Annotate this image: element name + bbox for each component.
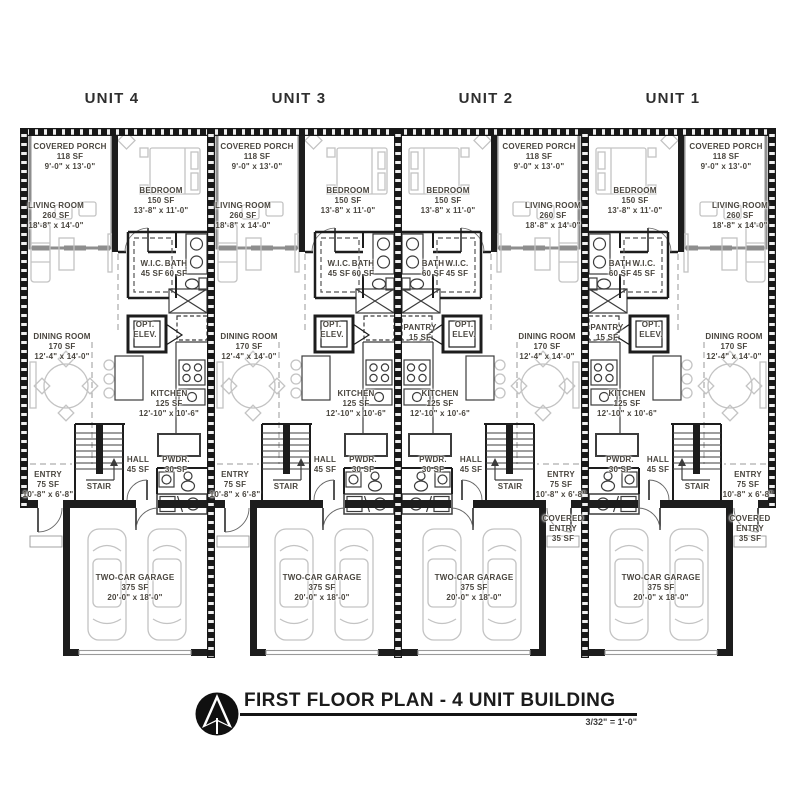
room-label-line: 375 SF	[622, 583, 701, 593]
room-label-line: W.I.C.	[633, 259, 656, 269]
room-label-line: PWDR.	[606, 455, 634, 465]
room-label-line: 30 SF	[606, 465, 634, 475]
room-label-line: DINING ROOM	[705, 332, 762, 342]
room-label-garage: TWO-CAR GARAGE375 SF20'-0" x 18'-0"	[283, 573, 362, 602]
room-label-line: BATH	[352, 259, 374, 269]
room-label-line: COVERED PORCH	[502, 142, 575, 152]
room-label-bath: BATH60 SF	[352, 259, 374, 279]
room-label-kitchen: KITCHEN125 SF12'-10" x 10'-6"	[410, 389, 470, 418]
room-label-kitchen: KITCHEN125 SF12'-10" x 10'-6"	[326, 389, 386, 418]
room-label-line: 45 SF	[127, 465, 149, 475]
unit-1: COVERED PORCH118 SF9'-0" x 13'-0"BEDROOM…	[589, 128, 768, 663]
room-label-covered-porch: COVERED PORCH118 SF9'-0" x 13'-0"	[689, 142, 762, 171]
room-label-line: BEDROOM	[608, 186, 663, 196]
room-label-line: 13'-8" x 11'-0"	[421, 206, 476, 216]
room-label-line: 75 SF	[723, 480, 774, 490]
room-label-line: 20'-0" x 18'-0"	[622, 593, 701, 603]
room-label-line: DINING ROOM	[33, 332, 90, 342]
room-label-line: 15 SF	[590, 333, 623, 343]
room-label-line: 12'-10" x 10'-6"	[597, 409, 657, 419]
room-label-line: BEDROOM	[421, 186, 476, 196]
room-label-hall: HALL45 SF	[127, 455, 149, 475]
room-label-line: KITCHEN	[410, 389, 470, 399]
room-label-stair: STAIR	[498, 482, 522, 492]
room-label-line: 12'-10" x 10'-6"	[139, 409, 199, 419]
room-label-line: 125 SF	[326, 399, 386, 409]
room-label-pwdr: PWDR.30 SF	[419, 455, 447, 475]
room-label-line: DINING ROOM	[518, 332, 575, 342]
room-label-line: BATH	[422, 259, 444, 269]
room-label-bedroom: BEDROOM150 SF13'-8" x 11'-0"	[421, 186, 476, 215]
room-label-line: ENTRY	[543, 524, 584, 534]
room-label-line: 60 SF	[352, 269, 374, 279]
room-label-line: 12'-4" x 14'-0"	[705, 352, 762, 362]
room-label-hall: HALL45 SF	[647, 455, 669, 475]
room-label-line: 9'-0" x 13'-0"	[689, 162, 762, 172]
room-label-line: 20'-0" x 18'-0"	[435, 593, 514, 603]
room-label-covered-entry: COVEREDENTRY35 SF	[730, 514, 771, 543]
room-label-line: 10'-8" x 6'-8"	[723, 490, 774, 500]
room-label-pwdr: PWDR.30 SF	[162, 455, 190, 475]
wall-right	[768, 128, 776, 508]
room-label-living-room: LIVING ROOM260 SF18'-8" x 14'-0"	[712, 201, 768, 230]
room-label-line: 30 SF	[162, 465, 190, 475]
room-label-line: W.I.C.	[328, 259, 351, 269]
room-label-line: 20'-0" x 18'-0"	[283, 593, 362, 603]
room-label-line: 118 SF	[33, 152, 106, 162]
room-label-line: STAIR	[87, 482, 111, 492]
room-label-line: 45 SF	[314, 465, 336, 475]
room-label-line: 260 SF	[28, 211, 84, 221]
room-label-line: ELEV.	[133, 330, 156, 340]
room-label-line: 13'-8" x 11'-0"	[134, 206, 189, 216]
room-label-line: PWDR.	[162, 455, 190, 465]
room-label-line: 9'-0" x 13'-0"	[33, 162, 106, 172]
room-label-line: 260 SF	[712, 211, 768, 221]
room-label-line: 170 SF	[33, 342, 90, 352]
room-label-hall: HALL45 SF	[314, 455, 336, 475]
room-label-line: 12'-4" x 14'-0"	[518, 352, 575, 362]
room-label-line: 45 SF	[141, 269, 164, 279]
room-label-line: TWO-CAR GARAGE	[622, 573, 701, 583]
room-label-line: 375 SF	[283, 583, 362, 593]
room-label-line: HALL	[647, 455, 669, 465]
room-label-opt-elev: OPT.ELEV.	[639, 320, 662, 340]
room-label-line: 18'-8" x 14'-0"	[712, 221, 768, 231]
room-label-dining-room: DINING ROOM170 SF12'-4" x 14'-0"	[518, 332, 575, 361]
room-label-garage: TWO-CAR GARAGE375 SF20'-0" x 18'-0"	[96, 573, 175, 602]
room-label-line: KITCHEN	[326, 389, 386, 399]
room-label-stair: STAIR	[87, 482, 111, 492]
room-label-line: 260 SF	[525, 211, 581, 221]
room-label-line: 30 SF	[419, 465, 447, 475]
room-label-opt-elev: OPT.ELEV.	[133, 320, 156, 340]
room-label-line: 12'-10" x 10'-6"	[410, 409, 470, 419]
room-label-line: OPT.	[133, 320, 156, 330]
room-label-line: 45 SF	[647, 465, 669, 475]
room-label-line: 60 SF	[165, 269, 187, 279]
room-label-line: 15 SF	[403, 333, 436, 343]
room-label-line: ELEV.	[320, 330, 343, 340]
room-label-line: HALL	[460, 455, 482, 465]
room-label-line: 60 SF	[609, 269, 631, 279]
room-label-line: TWO-CAR GARAGE	[435, 573, 514, 583]
room-label-line: COVERED PORCH	[220, 142, 293, 152]
room-label-entry: ENTRY75 SF10'-8" x 6'-8"	[210, 470, 261, 499]
room-label-pantry: PANTRY15 SF	[590, 323, 623, 343]
room-label-line: KITCHEN	[597, 389, 657, 399]
room-label-covered-porch: COVERED PORCH118 SF9'-0" x 13'-0"	[220, 142, 293, 171]
unit-label-unit-2: UNIT 2	[459, 90, 514, 107]
plan-scale: 3/32" = 1'-0"	[500, 717, 637, 727]
room-label-bedroom: BEDROOM150 SF13'-8" x 11'-0"	[134, 186, 189, 215]
room-label-bath: BATH60 SF	[609, 259, 631, 279]
room-label-line: OPT.	[320, 320, 343, 330]
room-label-line: 150 SF	[321, 196, 376, 206]
room-label-line: 13'-8" x 11'-0"	[321, 206, 376, 216]
room-label-line: 18'-8" x 14'-0"	[525, 221, 581, 231]
room-label-kitchen: KITCHEN125 SF12'-10" x 10'-6"	[139, 389, 199, 418]
unit-4: COVERED PORCH118 SF9'-0" x 13'-0"BEDROOM…	[28, 128, 207, 663]
room-label-line: 125 SF	[410, 399, 470, 409]
room-label-line: COVERED	[543, 514, 584, 524]
room-label-line: COVERED	[730, 514, 771, 524]
room-label-line: PANTRY	[403, 323, 436, 333]
room-label-line: 118 SF	[502, 152, 575, 162]
unit-label-unit-1: UNIT 1	[646, 90, 701, 107]
room-label-line: ENTRY	[23, 470, 74, 480]
room-label-line: DINING ROOM	[220, 332, 277, 342]
party-wall-3	[581, 128, 589, 658]
room-label-garage: TWO-CAR GARAGE375 SF20'-0" x 18'-0"	[622, 573, 701, 602]
room-label-line: 18'-8" x 14'-0"	[28, 221, 84, 231]
room-label-line: OPT.	[639, 320, 662, 330]
room-label-line: 18'-8" x 14'-0"	[215, 221, 271, 231]
unit-2: COVERED PORCH118 SF9'-0" x 13'-0"BEDROOM…	[402, 128, 581, 663]
room-label-wic: W.I.C.45 SF	[141, 259, 164, 279]
room-label-line: 10'-8" x 6'-8"	[536, 490, 587, 500]
room-label-opt-elev: OPT.ELEV.	[320, 320, 343, 340]
room-label-line: 45 SF	[446, 269, 469, 279]
room-label-line: HALL	[127, 455, 149, 465]
room-label-line: 75 SF	[210, 480, 261, 490]
room-label-bath: BATH60 SF	[422, 259, 444, 279]
room-label-hall: HALL45 SF	[460, 455, 482, 475]
room-label-wic: W.I.C.45 SF	[328, 259, 351, 279]
room-label-line: 20'-0" x 18'-0"	[96, 593, 175, 603]
room-label-line: 45 SF	[633, 269, 656, 279]
title-underline	[240, 713, 637, 716]
room-label-line: 35 SF	[543, 534, 584, 544]
room-label-line: 375 SF	[96, 583, 175, 593]
room-label-pwdr: PWDR.30 SF	[606, 455, 634, 475]
room-label-line: ENTRY	[210, 470, 261, 480]
room-label-entry: ENTRY75 SF10'-8" x 6'-8"	[723, 470, 774, 499]
room-label-line: 375 SF	[435, 583, 514, 593]
room-label-line: OPT.	[452, 320, 475, 330]
room-label-line: ENTRY	[536, 470, 587, 480]
room-label-line: PWDR.	[349, 455, 377, 465]
room-label-line: STAIR	[685, 482, 709, 492]
room-label-line: PWDR.	[419, 455, 447, 465]
room-label-line: ENTRY	[730, 524, 771, 534]
room-label-line: STAIR	[498, 482, 522, 492]
north-arrow-icon	[194, 691, 240, 737]
room-label-line: 12'-10" x 10'-6"	[326, 409, 386, 419]
room-label-line: BATH	[165, 259, 187, 269]
room-label-line: ELEV.	[452, 330, 475, 340]
room-label-living-room: LIVING ROOM260 SF18'-8" x 14'-0"	[215, 201, 271, 230]
room-label-line: 170 SF	[518, 342, 575, 352]
room-label-line: TWO-CAR GARAGE	[283, 573, 362, 583]
room-label-line: 13'-8" x 11'-0"	[608, 206, 663, 216]
floor-plan-sheet: UNIT 4UNIT 3UNIT 2UNIT 1	[0, 0, 800, 800]
room-label-pantry: PANTRY15 SF	[403, 323, 436, 343]
room-label-line: STAIR	[274, 482, 298, 492]
room-label-line: COVERED PORCH	[689, 142, 762, 152]
room-label-line: 150 SF	[421, 196, 476, 206]
room-label-line: BEDROOM	[134, 186, 189, 196]
room-label-opt-elev: OPT.ELEV.	[452, 320, 475, 340]
room-label-line: 12'-4" x 14'-0"	[33, 352, 90, 362]
room-label-line: HALL	[314, 455, 336, 465]
room-label-living-room: LIVING ROOM260 SF18'-8" x 14'-0"	[28, 201, 84, 230]
room-label-wic: W.I.C.45 SF	[446, 259, 469, 279]
room-label-line: BATH	[609, 259, 631, 269]
room-label-garage: TWO-CAR GARAGE375 SF20'-0" x 18'-0"	[435, 573, 514, 602]
room-label-line: LIVING ROOM	[28, 201, 84, 211]
room-label-pwdr: PWDR.30 SF	[349, 455, 377, 475]
room-label-wic: W.I.C.45 SF	[633, 259, 656, 279]
room-label-line: 60 SF	[422, 269, 444, 279]
room-label-line: 35 SF	[730, 534, 771, 544]
room-label-bedroom: BEDROOM150 SF13'-8" x 11'-0"	[608, 186, 663, 215]
room-label-line: 45 SF	[328, 269, 351, 279]
room-label-kitchen: KITCHEN125 SF12'-10" x 10'-6"	[597, 389, 657, 418]
room-label-dining-room: DINING ROOM170 SF12'-4" x 14'-0"	[220, 332, 277, 361]
room-label-line: 10'-8" x 6'-8"	[23, 490, 74, 500]
room-label-line: 10'-8" x 6'-8"	[210, 490, 261, 500]
room-label-line: BEDROOM	[321, 186, 376, 196]
room-label-line: 150 SF	[134, 196, 189, 206]
room-label-line: LIVING ROOM	[215, 201, 271, 211]
room-label-living-room: LIVING ROOM260 SF18'-8" x 14'-0"	[525, 201, 581, 230]
room-label-line: 75 SF	[23, 480, 74, 490]
room-label-line: 45 SF	[460, 465, 482, 475]
room-label-line: ELEV.	[639, 330, 662, 340]
room-label-line: COVERED PORCH	[33, 142, 106, 152]
party-wall-2	[394, 128, 402, 658]
room-label-dining-room: DINING ROOM170 SF12'-4" x 14'-0"	[705, 332, 762, 361]
room-label-line: 150 SF	[608, 196, 663, 206]
plan-title: FIRST FLOOR PLAN - 4 UNIT BUILDING	[244, 690, 615, 712]
room-label-line: TWO-CAR GARAGE	[96, 573, 175, 583]
building-plan: COVERED PORCH118 SF9'-0" x 13'-0"BEDROOM…	[20, 128, 776, 663]
room-label-stair: STAIR	[274, 482, 298, 492]
room-label-entry: ENTRY75 SF10'-8" x 6'-8"	[23, 470, 74, 499]
room-label-line: KITCHEN	[139, 389, 199, 399]
wall-left	[20, 128, 28, 508]
room-label-line: 118 SF	[689, 152, 762, 162]
room-label-covered-porch: COVERED PORCH118 SF9'-0" x 13'-0"	[33, 142, 106, 171]
room-label-bath: BATH60 SF	[165, 259, 187, 279]
unit-label-unit-3: UNIT 3	[272, 90, 327, 107]
room-label-line: 118 SF	[220, 152, 293, 162]
room-label-bedroom: BEDROOM150 SF13'-8" x 11'-0"	[321, 186, 376, 215]
room-label-line: 170 SF	[705, 342, 762, 352]
room-label-covered-porch: COVERED PORCH118 SF9'-0" x 13'-0"	[502, 142, 575, 171]
room-label-line: W.I.C.	[446, 259, 469, 269]
party-wall-1	[207, 128, 215, 658]
room-label-dining-room: DINING ROOM170 SF12'-4" x 14'-0"	[33, 332, 90, 361]
room-label-line: 125 SF	[597, 399, 657, 409]
unit-3: COVERED PORCH118 SF9'-0" x 13'-0"BEDROOM…	[215, 128, 394, 663]
room-label-line: 9'-0" x 13'-0"	[220, 162, 293, 172]
unit-label-unit-4: UNIT 4	[85, 90, 140, 107]
room-label-line: W.I.C.	[141, 259, 164, 269]
room-label-line: 9'-0" x 13'-0"	[502, 162, 575, 172]
title-block: FIRST FLOOR PLAN - 4 UNIT BUILDING 3/32"…	[0, 688, 800, 748]
room-label-line: 30 SF	[349, 465, 377, 475]
room-label-line: 125 SF	[139, 399, 199, 409]
room-label-line: PANTRY	[590, 323, 623, 333]
room-label-line: 170 SF	[220, 342, 277, 352]
room-label-line: 260 SF	[215, 211, 271, 221]
room-label-line: 12'-4" x 14'-0"	[220, 352, 277, 362]
room-label-line: ENTRY	[723, 470, 774, 480]
room-label-line: LIVING ROOM	[712, 201, 768, 211]
room-label-covered-entry: COVEREDENTRY35 SF	[543, 514, 584, 543]
room-label-line: LIVING ROOM	[525, 201, 581, 211]
room-label-line: 75 SF	[536, 480, 587, 490]
room-label-entry: ENTRY75 SF10'-8" x 6'-8"	[536, 470, 587, 499]
room-label-stair: STAIR	[685, 482, 709, 492]
